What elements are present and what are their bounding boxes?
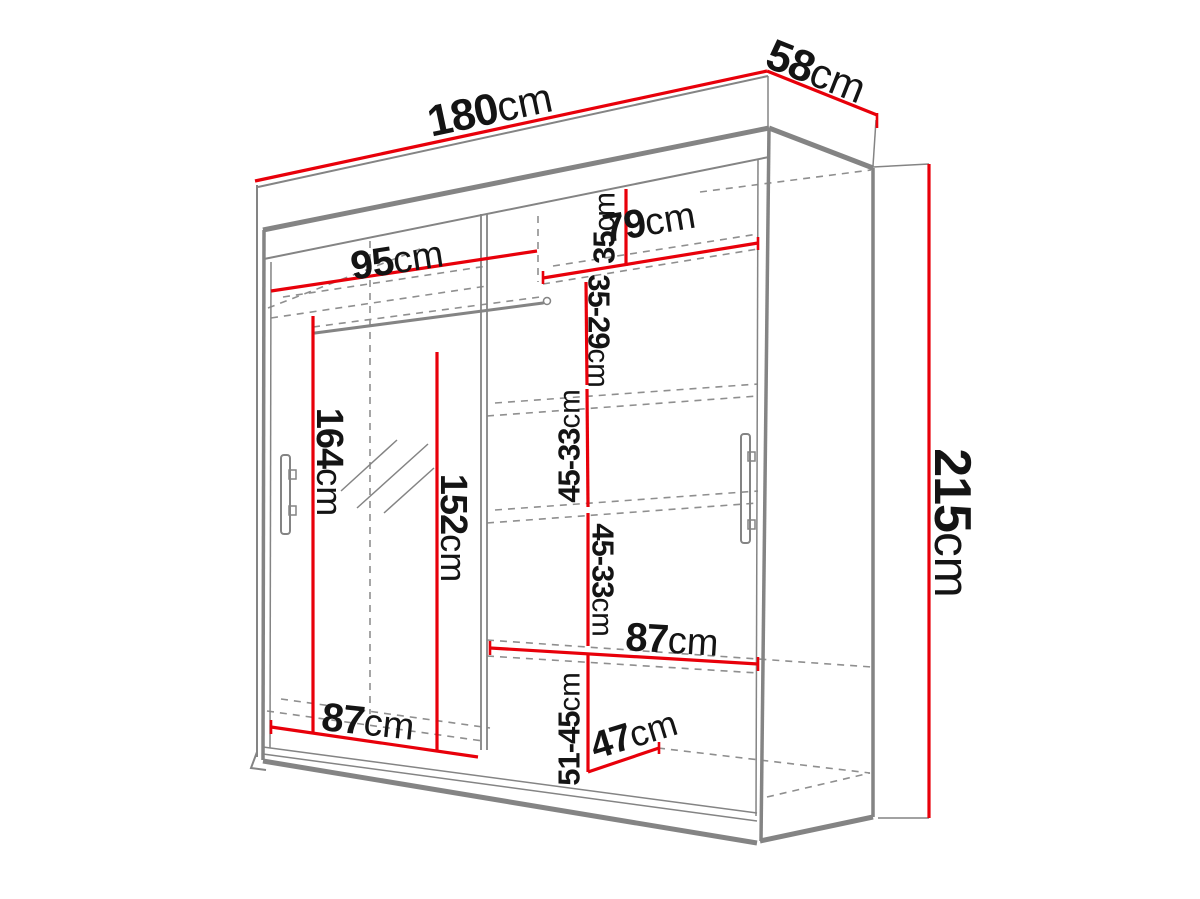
dim-label-gap-right-2: 35-29cm [583,274,614,388]
dim-unit: cm [362,702,417,749]
dim-value: 95 [348,239,397,289]
dim-unit: cm [924,532,979,598]
dim-unit: cm [642,195,699,245]
dim-unit: cm [553,672,586,711]
dim-label-gap-right-4: 45-33cm [587,523,618,637]
dim-unit: cm [588,192,621,231]
dim-label-gap-right-bottom: 51-45cm [553,672,584,786]
wardrobe-dimension-diagram: 180cm58cm215cm95cm79cm35cm35-29cm45-33cm… [0,0,1200,899]
witness-lines [873,120,929,818]
dim-label-bottom-width-left: 87cm [320,697,417,747]
right-door-handle [741,434,755,543]
dim-label-height-total: 215cm [926,448,978,598]
dim-label-hanging-height-left: 164cm [310,408,348,517]
dim-unit: cm [667,620,720,665]
dim-value: 215 [923,448,981,532]
dim-value: 164 [308,408,350,468]
left-door-handle [281,455,296,534]
dim-label-shelf-width-right-low: 87cm [624,617,719,663]
dim-line-79 [543,243,758,278]
dim-label-gap-right-3: 45-33cm [553,389,584,503]
dim-unit: cm [433,534,474,582]
dim-unit: cm [309,468,350,516]
dim-unit: cm [586,598,619,637]
dim-label-mirror-height: 152cm [434,474,472,583]
dim-value: 35 [586,231,621,263]
dim-unit: cm [582,349,615,388]
dim-value: 45-33 [551,428,586,502]
dim-label-gap-right-top: 35cm [588,192,619,264]
dim-value: 45-33 [586,523,621,597]
dim-value: 87 [624,615,669,662]
hanging-rail [315,298,551,334]
dim-unit: cm [553,389,586,428]
dim-value: 87 [319,695,366,743]
dim-value: 51-45 [551,711,586,785]
mirror-glass-lines [341,440,434,513]
dim-unit: cm [390,233,446,282]
dim-value: 35-29 [582,274,617,348]
dim-line-45-33a [587,389,588,507]
dim-value: 152 [432,474,474,534]
